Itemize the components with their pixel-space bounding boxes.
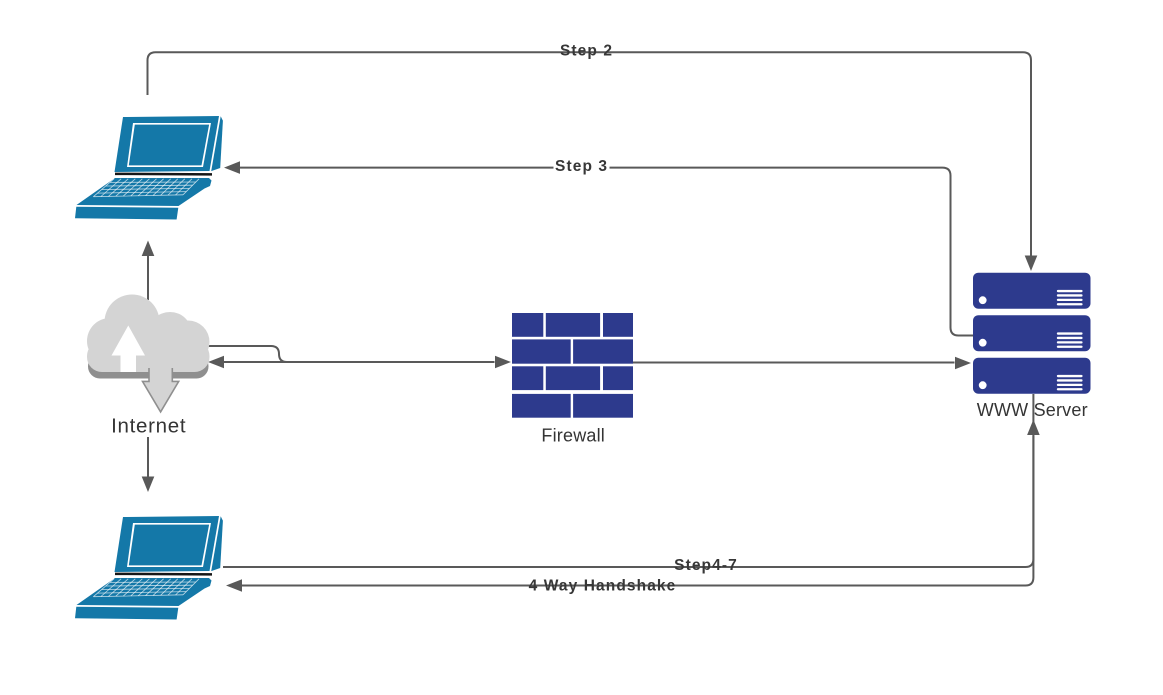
svg-text:Step 2: Step 2 bbox=[560, 43, 613, 60]
svg-text:Internet: Internet bbox=[111, 414, 186, 437]
svg-text:Firewall: Firewall bbox=[541, 425, 605, 445]
svg-text:Step4-7: Step4-7 bbox=[674, 557, 738, 574]
svg-text:WWW Server: WWW Server bbox=[977, 400, 1088, 420]
svg-text:Step 3: Step 3 bbox=[555, 158, 608, 175]
svg-text:4 Way Handshake: 4 Way Handshake bbox=[529, 578, 677, 595]
